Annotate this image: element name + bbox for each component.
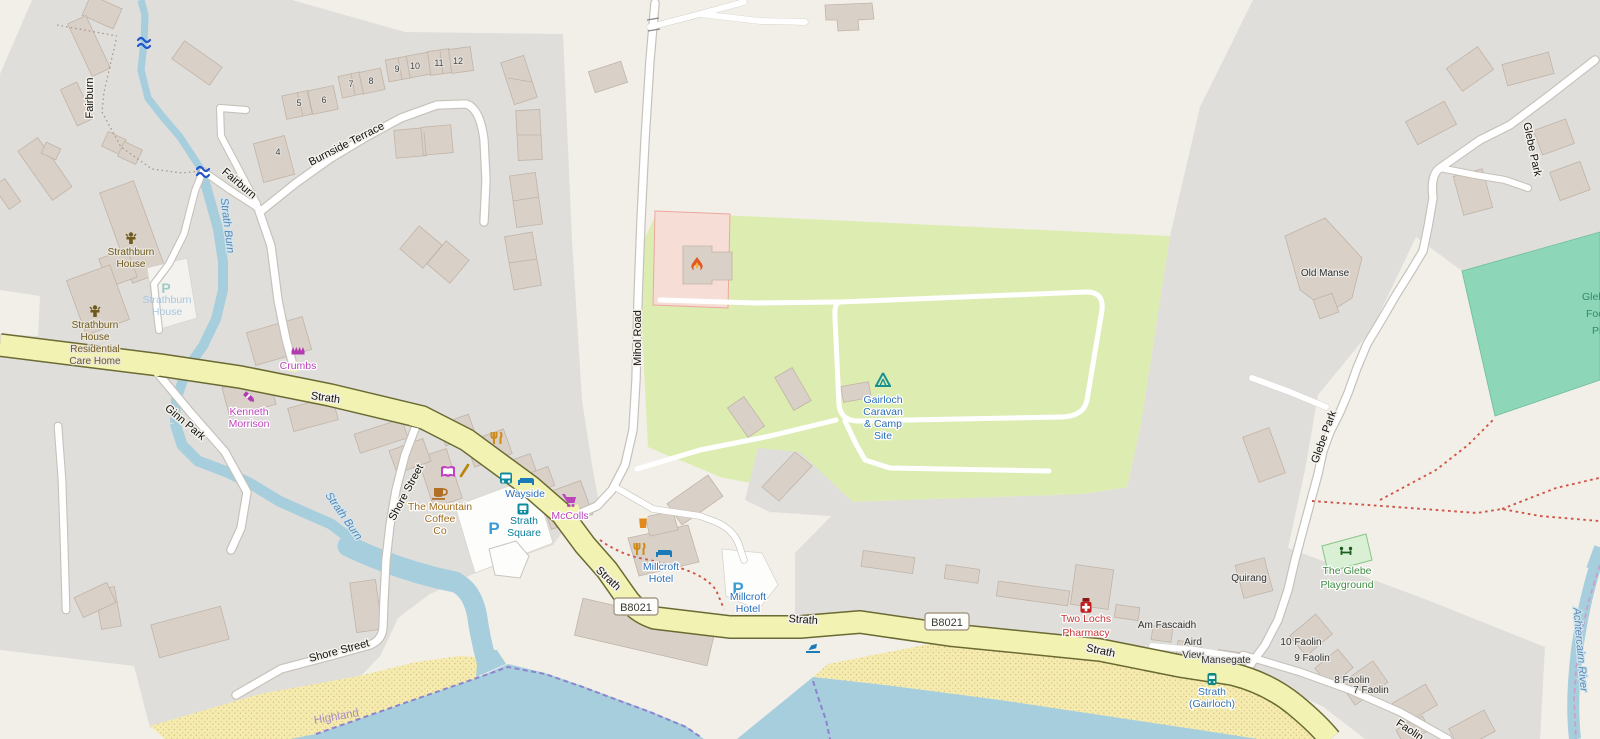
svg-text:Wayside: Wayside bbox=[505, 488, 545, 500]
svg-text:Gairloch: Gairloch bbox=[863, 394, 902, 406]
svg-text:Millcroft: Millcroft bbox=[730, 591, 766, 603]
svg-text:Strath: Strath bbox=[1198, 686, 1226, 698]
svg-text:4: 4 bbox=[275, 147, 280, 157]
svg-text:10 Faolin: 10 Faolin bbox=[1280, 637, 1321, 648]
svg-text:Square: Square bbox=[507, 527, 541, 539]
svg-text:Crumbs: Crumbs bbox=[280, 360, 317, 372]
svg-text:Residential: Residential bbox=[70, 344, 119, 355]
svg-text:Co: Co bbox=[433, 525, 447, 537]
svg-text:Hotel: Hotel bbox=[649, 573, 674, 585]
svg-text:9: 9 bbox=[394, 64, 399, 74]
svg-text:Pharmacy: Pharmacy bbox=[1062, 627, 1110, 639]
svg-text:B8021: B8021 bbox=[931, 617, 963, 629]
svg-text:Playground: Playground bbox=[1320, 579, 1373, 591]
svg-text:7: 7 bbox=[348, 79, 353, 89]
svg-text:Old Manse: Old Manse bbox=[1301, 268, 1350, 279]
svg-text:(Gairloch): (Gairloch) bbox=[1189, 698, 1235, 710]
svg-text:Strathburn: Strathburn bbox=[142, 294, 191, 306]
svg-text:House: House bbox=[152, 306, 183, 318]
svg-text:Mansegate: Mansegate bbox=[1201, 655, 1251, 666]
svg-text:8: 8 bbox=[368, 76, 373, 86]
svg-text:Aird: Aird bbox=[1184, 637, 1202, 648]
svg-text:& Camp: & Camp bbox=[864, 418, 902, 430]
svg-text:P: P bbox=[488, 519, 499, 538]
svg-text:10: 10 bbox=[410, 61, 420, 71]
svg-text:McColls: McColls bbox=[551, 510, 588, 522]
svg-text:Strath: Strath bbox=[788, 613, 818, 627]
svg-text:Glebe: Glebe bbox=[1582, 291, 1600, 303]
svg-text:Two Lochs: Two Lochs bbox=[1061, 613, 1111, 625]
svg-text:Football: Football bbox=[1586, 308, 1600, 320]
svg-text:7 Faolin: 7 Faolin bbox=[1353, 685, 1389, 696]
svg-text:9 Faolin: 9 Faolin bbox=[1294, 653, 1330, 664]
svg-text:6: 6 bbox=[321, 95, 326, 105]
svg-text:B8021: B8021 bbox=[620, 602, 652, 614]
svg-text:Strath: Strath bbox=[510, 515, 538, 527]
svg-text:House: House bbox=[117, 259, 146, 270]
svg-text:5: 5 bbox=[296, 98, 301, 108]
svg-text:Quirang: Quirang bbox=[1231, 573, 1267, 584]
svg-text:Kenneth: Kenneth bbox=[229, 406, 268, 418]
svg-text:Mihol Road: Mihol Road bbox=[632, 310, 644, 366]
svg-text:Caravan: Caravan bbox=[863, 406, 903, 418]
svg-text:The Mountain: The Mountain bbox=[408, 501, 472, 513]
svg-text:House: House bbox=[81, 332, 110, 343]
svg-text:Pit: Pit bbox=[1592, 325, 1600, 337]
svg-text:12: 12 bbox=[453, 56, 463, 66]
svg-text:Hotel: Hotel bbox=[736, 603, 761, 615]
svg-text:Strathburn: Strathburn bbox=[72, 320, 119, 331]
svg-text:Fairburn: Fairburn bbox=[84, 78, 96, 119]
svg-text:Am Fascaidh: Am Fascaidh bbox=[1138, 620, 1196, 631]
svg-text:Millcroft: Millcroft bbox=[643, 561, 679, 573]
svg-text:Site: Site bbox=[874, 430, 892, 442]
svg-text:Care Home: Care Home bbox=[69, 356, 121, 367]
svg-text:Coffee: Coffee bbox=[425, 513, 456, 525]
svg-text:11: 11 bbox=[434, 58, 443, 68]
svg-text:The Glebe: The Glebe bbox=[1322, 565, 1371, 577]
svg-text:Strathburn: Strathburn bbox=[108, 247, 155, 258]
svg-text:Morrison: Morrison bbox=[229, 418, 270, 430]
